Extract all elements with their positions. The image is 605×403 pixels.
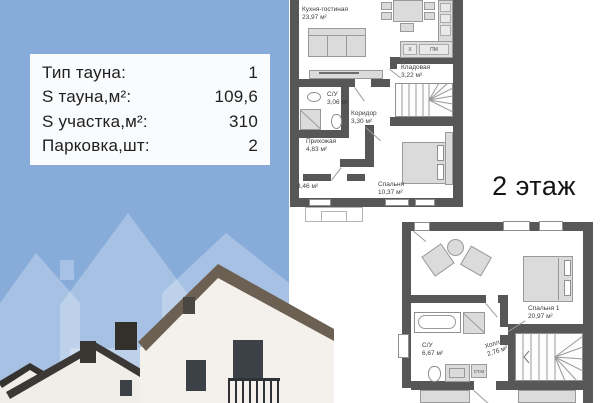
floor-title: 2 этаж: [482, 171, 586, 202]
staircase: [515, 333, 583, 381]
wall: [583, 222, 593, 403]
info-value: 109,6: [214, 87, 258, 107]
townhouse-photo: [0, 198, 334, 403]
sofa: [308, 28, 366, 57]
window-bay: [398, 334, 409, 358]
chair: [424, 2, 435, 10]
info-value: 310: [229, 112, 258, 132]
room-label-bath: С/У 3,06 м²: [327, 91, 348, 108]
pillow: [437, 145, 444, 161]
bed-cutoff: [518, 390, 576, 403]
staircase: [395, 83, 453, 117]
door-swing: [354, 87, 365, 101]
listing-image: X ПМ: [0, 0, 605, 403]
info-card: Тип тауна: 1 S тауна,м²: 109,6 S участка…: [30, 54, 270, 165]
window: [539, 221, 563, 231]
balcony-railing: [228, 378, 280, 403]
wall: [290, 0, 299, 207]
wall: [508, 333, 515, 381]
info-label: Тип тауна:: [42, 63, 126, 83]
wall: [402, 222, 411, 388]
wall: [390, 57, 397, 69]
info-row-parking: Парковка,шт: 2: [42, 136, 258, 156]
sofa-divider: [327, 35, 328, 56]
stove: [440, 25, 451, 36]
armchair: [460, 245, 492, 276]
chair: [381, 12, 392, 20]
wall: [411, 381, 474, 390]
chair: [400, 23, 414, 32]
door-swing: [331, 167, 342, 180]
wall: [347, 174, 365, 181]
info-row-plot-area: S участка,м²: 310: [42, 112, 258, 132]
bed-cutoff: [420, 390, 470, 403]
dining-table: [393, 0, 423, 22]
door-swing: [485, 303, 497, 317]
tv: [319, 72, 359, 74]
oven-unit: [440, 3, 451, 12]
info-row-type: Тип тауна: 1: [42, 63, 258, 83]
room-label-bedroom1: Спальня 1 20,97 м²: [528, 305, 560, 322]
chair: [381, 2, 392, 10]
sink-label: X: [403, 44, 417, 55]
info-label: S участка,м²:: [42, 112, 148, 132]
pillow: [564, 280, 571, 296]
wall: [299, 79, 355, 87]
window: [385, 199, 409, 206]
balcony-door: [414, 222, 430, 231]
sofa-back-line: [309, 35, 365, 36]
wall: [411, 295, 486, 303]
window: [503, 221, 530, 231]
door-swing: [413, 231, 426, 242]
chair: [424, 12, 435, 20]
door-swing: [473, 390, 489, 403]
round-table: [447, 239, 464, 256]
dishwasher-label: ПМ: [419, 44, 449, 55]
room-label-bath2: С/У 6,67 м²: [422, 342, 443, 359]
bed-line: [558, 258, 559, 300]
info-value: 2: [248, 136, 258, 156]
sink-basin: [449, 368, 465, 378]
toilet: [428, 366, 441, 382]
wall: [500, 295, 508, 327]
wall: [303, 174, 331, 181]
wall: [340, 159, 365, 167]
room-label-vestibule: 3,46 м²: [297, 183, 318, 191]
floor-plan-1: X ПМ: [289, 0, 463, 224]
wall: [390, 57, 453, 64]
pillow: [564, 260, 571, 276]
porch-steps: [321, 211, 347, 222]
window: [415, 199, 435, 206]
bathroom-sink: [307, 92, 321, 102]
wall: [290, 130, 349, 138]
room-label-corridor: Коридор 3,30 м²: [351, 110, 377, 127]
bathtub-inner: [418, 315, 456, 329]
room-label-storage: Кладовая 3,22 м²: [401, 64, 430, 81]
wall: [508, 324, 592, 333]
wall: [496, 381, 583, 390]
room-label-kitchen: Кухня-гостиная 23,97 м²: [302, 6, 348, 23]
microwave-unit: [440, 14, 451, 23]
info-label: S тауна,м²:: [42, 87, 131, 107]
room-label-hallway: Прихожая 4,83 м²: [306, 138, 336, 155]
wall: [390, 117, 453, 126]
info-value: 1: [248, 63, 258, 83]
wall: [453, 0, 463, 207]
sofa-divider: [346, 35, 347, 56]
washing-machine-label: СТ.М: [471, 364, 487, 378]
toilet: [331, 114, 342, 129]
entry-door: [309, 199, 331, 206]
wall: [402, 222, 592, 231]
wardrobe: [445, 132, 453, 185]
door-swing: [389, 69, 401, 78]
room-label-bedroom: Спальня 10,37 м²: [378, 181, 404, 198]
wall: [371, 79, 390, 87]
room-label-hall: Холл 2,76 м²: [484, 337, 509, 360]
pillow: [437, 164, 444, 180]
info-label: Парковка,шт:: [42, 136, 150, 156]
info-row-house-area: S тауна,м²: 109,6: [42, 87, 258, 107]
floor-plan-2: СТ.М Спальня 1 20,97 м²: [402, 220, 594, 403]
